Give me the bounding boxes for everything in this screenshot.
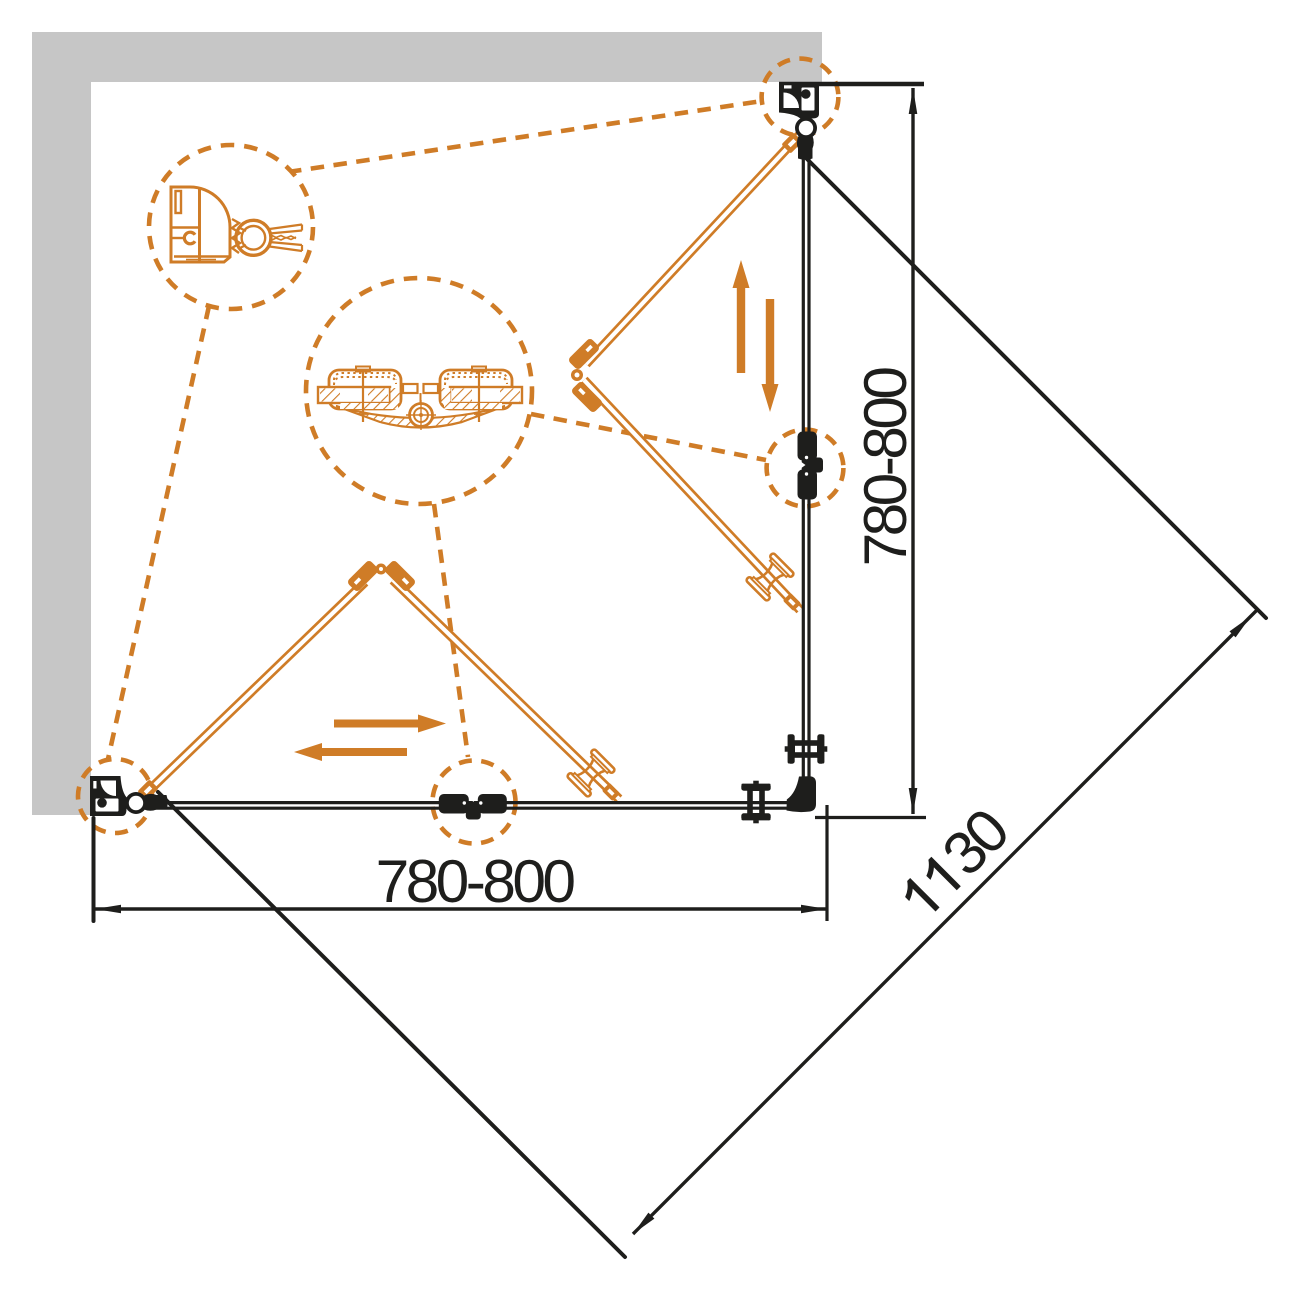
svg-text:780-800: 780-800 <box>376 847 575 915</box>
svg-text:780-800: 780-800 <box>851 368 919 567</box>
